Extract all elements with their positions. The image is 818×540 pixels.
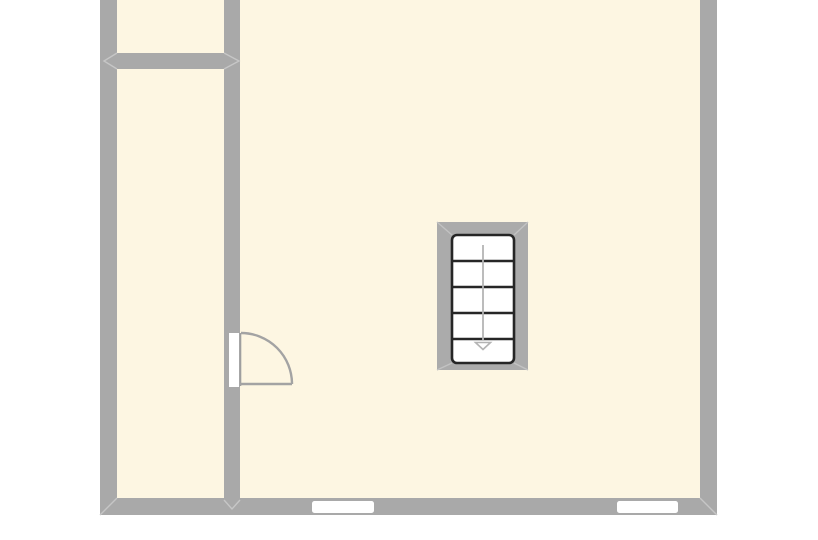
wall-top-left-partition[interactable] (117, 53, 224, 69)
window-bottom-left[interactable] (312, 501, 374, 513)
wall-right-exterior[interactable] (700, 0, 717, 515)
wall-vertical-divider[interactable] (224, 0, 240, 515)
floor-plan-canvas (0, 0, 818, 540)
floor-plan-svg (0, 0, 818, 540)
door-opening (229, 333, 239, 387)
staircase[interactable] (437, 222, 528, 370)
room-floor (100, 0, 717, 515)
floor-plan (100, 0, 717, 515)
window-bottom-right[interactable] (617, 501, 678, 513)
wall-left-exterior[interactable] (100, 0, 117, 515)
